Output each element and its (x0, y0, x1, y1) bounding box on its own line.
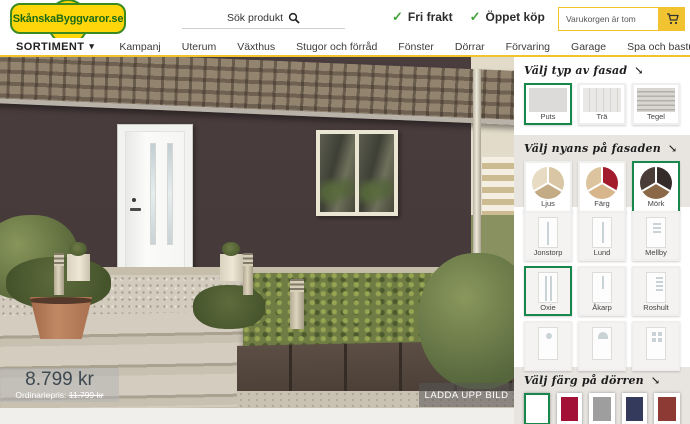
door-handle (130, 208, 141, 211)
arrow-down-right-icon: ↘ (668, 142, 677, 155)
grasses (193, 285, 265, 329)
facade-type-title: Välj typ av fasad↘ (524, 64, 680, 77)
nav-item-vaxthus[interactable]: Växthus (237, 41, 275, 53)
nav-item-spa[interactable]: Spa och bastu (627, 41, 690, 53)
bollard-light (54, 253, 64, 295)
door-model-label: Lund (580, 248, 624, 259)
facade-shade-farg[interactable]: Färg (578, 161, 626, 213)
door-color-white[interactable] (524, 393, 550, 424)
door-thumbnail (646, 217, 666, 248)
facade-shade-mork[interactable]: Mörk (632, 161, 680, 213)
check-icon: ✓ (470, 9, 481, 25)
door-model-mellby[interactable]: Mellby (632, 211, 680, 261)
benefit-open-purchase: ✓ Öppet köp (470, 9, 545, 25)
site-logo[interactable]: SkånskaByggvaror.se (10, 3, 126, 34)
color-fill (626, 397, 644, 421)
door-thumbnail (538, 217, 558, 248)
upload-image-label: LADDA UPP BILD (425, 390, 509, 401)
facade-shade-label: Mörk (648, 199, 665, 210)
background-fence (482, 157, 514, 215)
facade-type-label: Trä (580, 112, 624, 123)
nav-item-kampanj[interactable]: Kampanj (119, 41, 160, 53)
door-glass-strip (167, 143, 173, 245)
color-fill (561, 397, 579, 421)
nav-item-dorrar[interactable]: Dörrar (455, 41, 485, 53)
door-model-lund[interactable]: Lund (578, 211, 626, 261)
window-pane (320, 134, 355, 212)
door-model-label: Roshult (634, 303, 678, 314)
door-model-label: Åkarp (580, 303, 624, 314)
benefit-free-shipping: ✓ Fri frakt (392, 9, 453, 25)
facade-type-puts[interactable]: Puts (524, 83, 572, 125)
door-model-label: Jonstorp (526, 248, 570, 259)
door-thumbnail (592, 272, 612, 303)
nav-sortiment-label: SORTIMENT (16, 41, 84, 53)
price-overlay: 8.799 kr Ordinariepris: 11.799 kr (0, 368, 119, 402)
shade-pie-mork (640, 167, 672, 199)
facade-shade-section: Välj nyans på fasaden↘ Ljus Färg Mörk (514, 135, 690, 207)
door-thumbnail (538, 327, 558, 360)
door-model-label (526, 360, 570, 363)
door-lock (132, 198, 136, 202)
door-model-round-window[interactable] (524, 321, 572, 371)
nav-item-stugor[interactable]: Stugor och förråd (296, 41, 377, 53)
facade-shade-ljus[interactable]: Ljus (524, 161, 572, 213)
door-model-oxie[interactable]: Oxie (524, 266, 572, 316)
arrow-down-right-icon: ↘ (651, 374, 660, 387)
nav-item-forvaring[interactable]: Förvaring (506, 41, 550, 53)
cart-icon (666, 13, 679, 25)
tegel-texture (637, 88, 675, 112)
door-color-section: Välj färg på dörren↘ (514, 367, 690, 424)
cart-button[interactable] (659, 7, 685, 31)
chevron-down-icon: ▾ (89, 41, 94, 52)
door-thumbnail (592, 217, 612, 248)
facade-type-label: Tegel (634, 112, 678, 123)
facade-shade-title: Välj nyans på fasaden↘ (524, 142, 680, 155)
door-models-section: Jonstorp Lund Mellby Oxie Åkarp Roshult (514, 207, 690, 367)
benefit-label: Fri frakt (408, 10, 453, 24)
door-thumbnail (646, 272, 666, 303)
nav-item-uterum[interactable]: Uterum (182, 41, 216, 53)
door-thumbnail (538, 272, 558, 303)
facade-type-label: Puts (526, 112, 570, 123)
facade-type-section: Välj typ av fasad↘ Puts Trä Tegel (514, 57, 690, 135)
house-window (316, 130, 398, 216)
bollard-light (290, 279, 304, 329)
door-model-akarp[interactable]: Åkarp (578, 266, 626, 316)
color-fill (528, 397, 546, 421)
door-color-navy[interactable] (622, 393, 648, 424)
cart-status: Varukorgen är tom (558, 7, 659, 31)
search-icon (288, 12, 300, 24)
door-model-label: Mellby (634, 248, 678, 259)
door-model-jonstorp[interactable]: Jonstorp (524, 211, 572, 261)
current-price: 8.799 kr (25, 370, 94, 390)
search-input[interactable]: Sök produkt (182, 8, 345, 29)
arrow-down-right-icon: ↘ (634, 64, 643, 77)
logo-text: SkånskaByggvaror.se (13, 13, 124, 25)
bollard-light (243, 253, 253, 295)
tra-texture (583, 88, 621, 112)
benefits: ✓ Fri frakt ✓ Öppet köp (392, 9, 545, 25)
cart-status-text: Varukorgen är tom (566, 14, 636, 24)
window-pane (359, 134, 394, 212)
door-model-label (634, 360, 678, 363)
door-slab (125, 131, 185, 271)
door-thumbnail (646, 327, 666, 360)
front-door-preview (117, 124, 193, 272)
door-model-roshult[interactable]: Roshult (632, 266, 680, 316)
door-glass-strip (150, 143, 156, 245)
check-icon: ✓ (392, 9, 403, 25)
nav-sortiment[interactable]: SORTIMENT ▾ (16, 41, 94, 53)
header: SkånskaByggvaror.se Sök produkt ✓ Fri fr… (0, 0, 690, 38)
nav-item-fonster[interactable]: Fönster (398, 41, 434, 53)
door-model-grid-window[interactable] (632, 321, 680, 371)
door-color-crimson[interactable] (557, 393, 583, 424)
shade-pie-farg (586, 167, 618, 199)
cart-widget[interactable]: Varukorgen är tom (558, 7, 685, 31)
house-visualization: 8.799 kr Ordinariepris: 11.799 kr LADDA … (0, 57, 514, 408)
door-model-label: Oxie (526, 303, 570, 314)
ordinary-price-value: 11.799 kr (69, 390, 104, 400)
color-fill (658, 397, 676, 421)
door-color-gray[interactable] (589, 393, 615, 424)
facade-type-tra[interactable]: Trä (578, 83, 626, 125)
puts-texture (529, 88, 567, 112)
planter-box (220, 254, 243, 281)
nav-item-garage[interactable]: Garage (571, 41, 606, 53)
door-model-arch-window[interactable] (578, 321, 626, 371)
door-thumbnail (592, 327, 612, 360)
configurator-sidebar: Välj typ av fasad↘ Puts Trä Tegel Välj n… (514, 57, 690, 424)
ordinary-price: Ordinariepris: 11.799 kr (15, 390, 103, 400)
door-model-label (580, 360, 624, 363)
planter-box (67, 254, 90, 281)
color-fill (593, 397, 611, 421)
facade-type-tegel[interactable]: Tegel (632, 83, 680, 125)
ordinary-price-label: Ordinariepris: (15, 390, 66, 400)
facade-shade-label: Ljus (541, 199, 555, 210)
door-color-title: Välj färg på dörren↘ (524, 374, 680, 387)
upload-image-button[interactable]: LADDA UPP BILD (419, 383, 514, 407)
facade-shade-label: Färg (594, 199, 609, 210)
main-nav: SORTIMENT ▾ Kampanj Uterum Växthus Stugo… (0, 38, 690, 57)
search-placeholder: Sök produkt (227, 12, 283, 24)
page-background-strip (0, 408, 514, 424)
shade-pie-ljus (532, 167, 564, 199)
door-color-brick[interactable] (654, 393, 680, 424)
benefit-label: Öppet köp (486, 10, 545, 24)
